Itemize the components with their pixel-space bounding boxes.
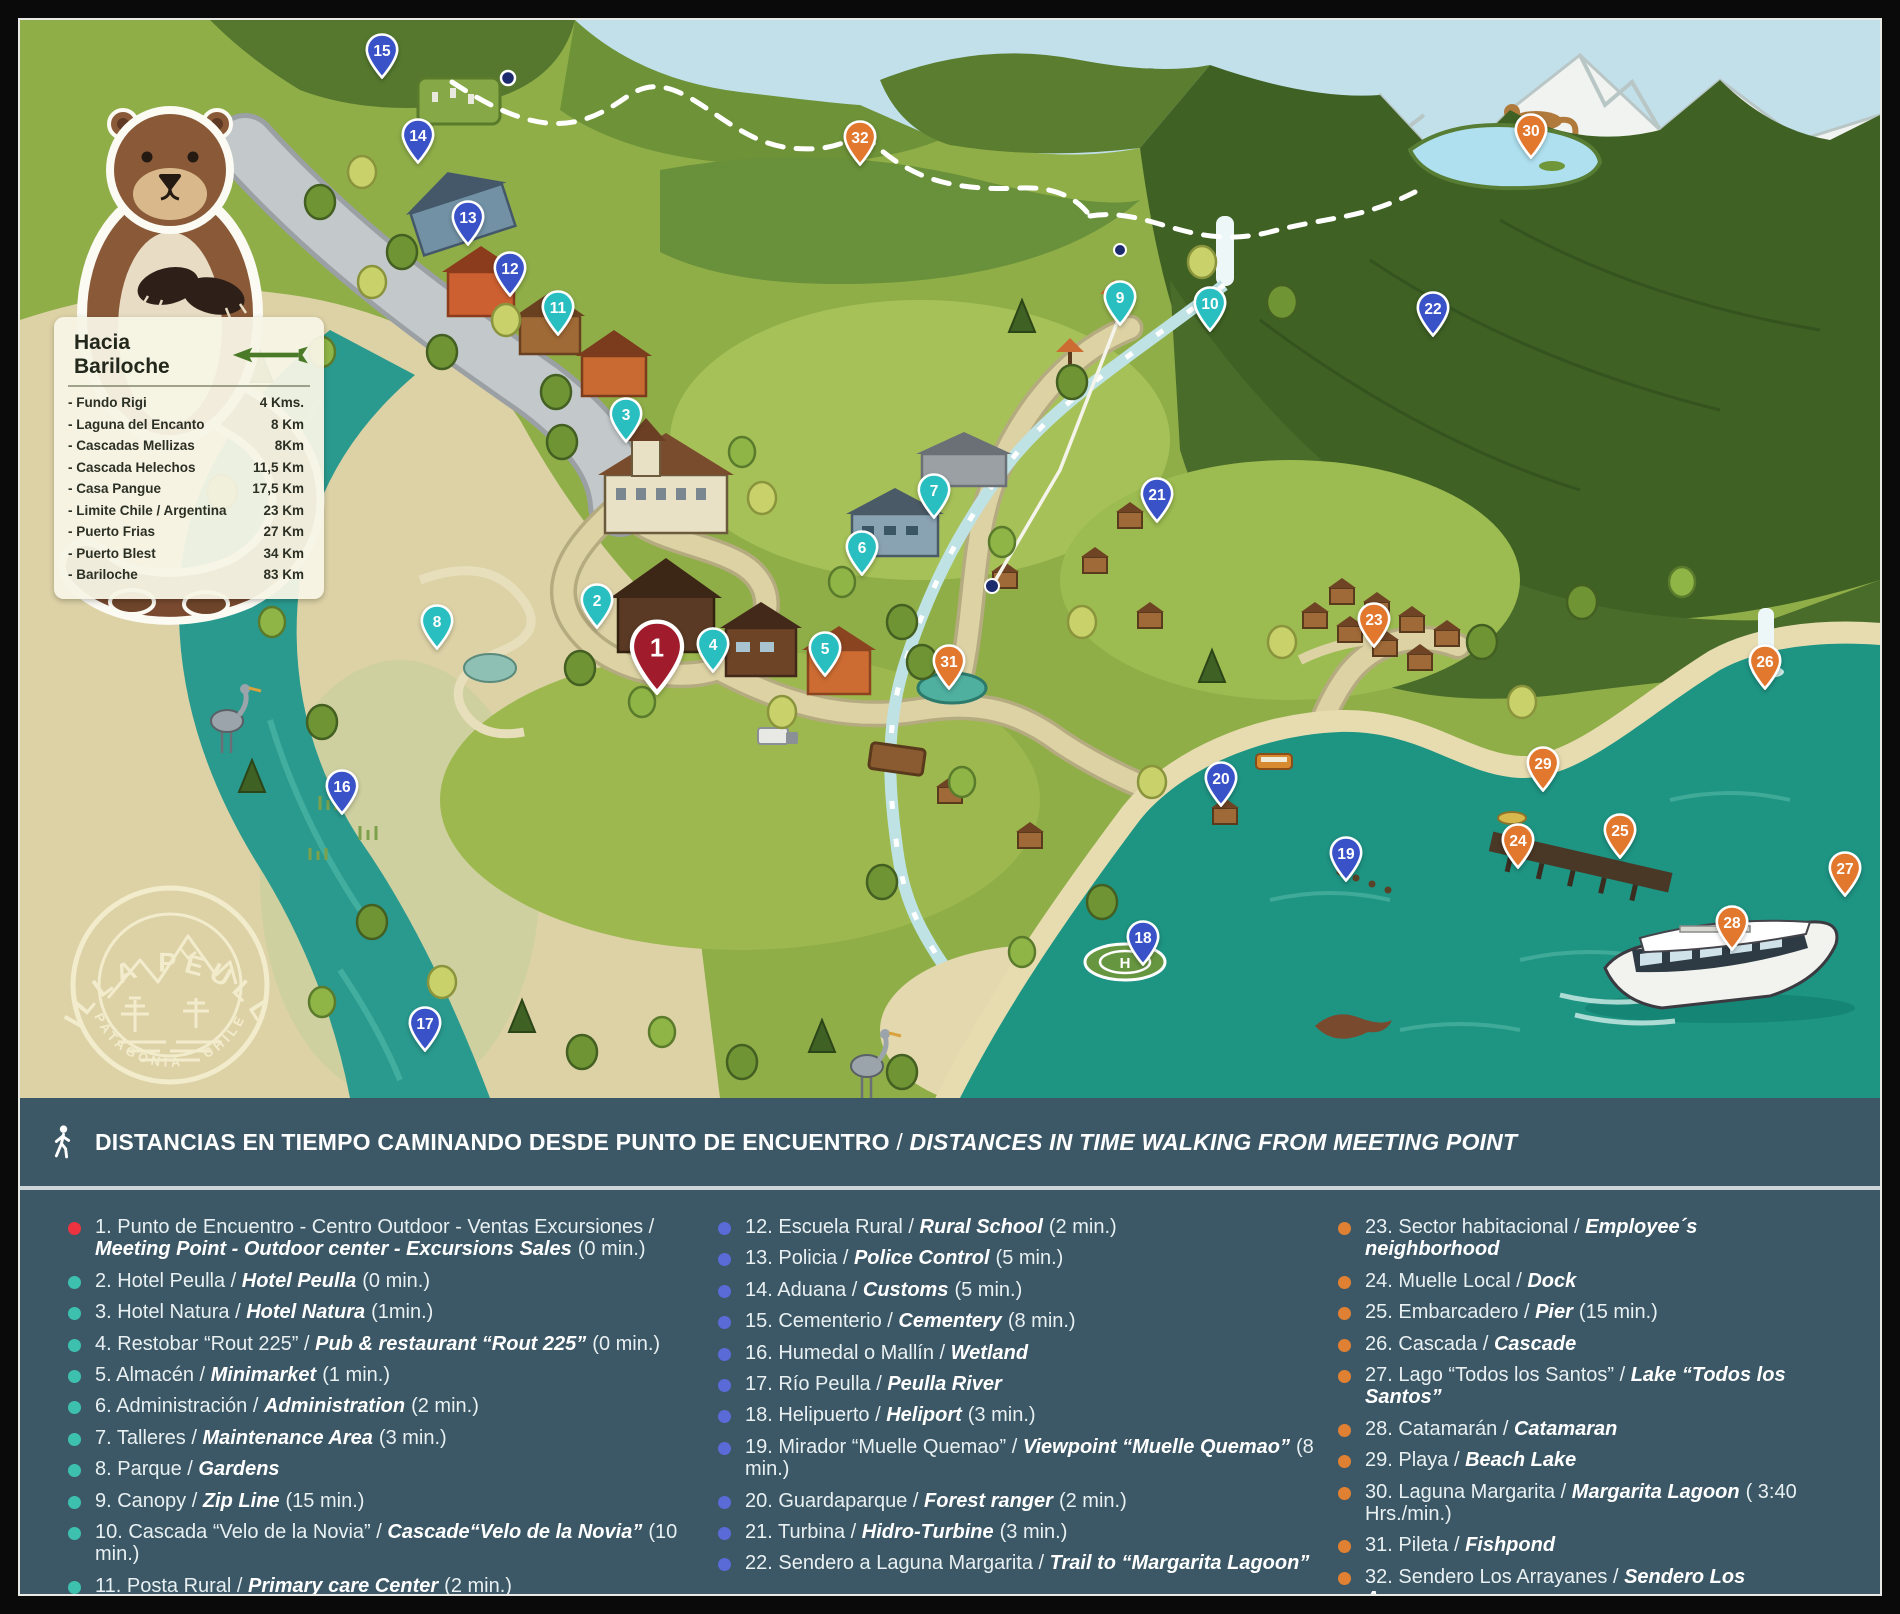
legend-column-3: 23. Sector habitacional / Employee´s nei…: [1338, 1216, 1850, 1594]
legend-item-6: 6. Administración / Administration(2 min…: [68, 1395, 718, 1417]
legend-bullet-orange: [1338, 1276, 1351, 1289]
map-marker-12[interactable]: 12: [493, 251, 527, 302]
legend-item-16: 16. Humedal o Mallín / Wetland: [718, 1342, 1338, 1364]
legend-item-text: 18. Helipuerto / Heliport(3 min.): [745, 1404, 1036, 1426]
legend-item-19: 19. Mirador “Muelle Quemao” / Viewpoint …: [718, 1436, 1338, 1481]
legend-item-text: 1. Punto de Encuentro - Centro Outdoor -…: [95, 1216, 700, 1261]
legend-item-24: 24. Muelle Local / Dock: [1338, 1270, 1850, 1292]
map-marker-23[interactable]: 23: [1357, 602, 1391, 653]
map-marker-7[interactable]: 7: [917, 473, 951, 524]
footer-text-es: DISTANCIAS EN TIEMPO CAMINANDO DESDE PUN…: [95, 1129, 890, 1155]
legend-item-7: 7. Talleres / Maintenance Area(3 min.): [68, 1427, 718, 1449]
marker-layer: 1234567891011121314151617181920212223242…: [20, 20, 1880, 1098]
legend-item-text: 32. Sendero Los Arrayanes / Sendero Los …: [1365, 1566, 1832, 1594]
legend-bullet-teal: [68, 1401, 81, 1414]
legend-bullet-blue: [718, 1379, 731, 1392]
legend-item-text: 26. Cascada / Cascade: [1365, 1333, 1582, 1355]
pin-number: 13: [459, 210, 477, 227]
map-marker-6[interactable]: 6: [845, 530, 879, 581]
pin-number: 10: [1201, 296, 1218, 313]
map-marker-20[interactable]: 20: [1204, 761, 1238, 812]
legend-item-text: 23. Sector habitacional / Employee´s nei…: [1365, 1216, 1832, 1261]
legend-item-11: 11. Posta Rural / Primary care Center(2 …: [68, 1575, 718, 1594]
map-marker-32[interactable]: 32: [843, 120, 877, 171]
legend-item-text: 31. Pileta / Fishpond: [1365, 1534, 1561, 1556]
pin-number: 30: [1522, 123, 1539, 140]
legend-column-1: 1. Punto de Encuentro - Centro Outdoor -…: [68, 1216, 718, 1594]
legend-item-text: 3. Hotel Natura / Hotel Natura(1min.): [95, 1301, 433, 1323]
legend-item-text: 24. Muelle Local / Dock: [1365, 1270, 1582, 1292]
pin-number: 29: [1534, 756, 1552, 773]
legend-item-text: 29. Playa / Beach Lake: [1365, 1449, 1582, 1471]
legend-item-8: 8. Parque / Gardens: [68, 1458, 718, 1480]
pin-number: 25: [1611, 823, 1629, 840]
legend-item-10: 10. Cascada “Velo de la Novia” / Cascade…: [68, 1521, 718, 1566]
legend-bullet-teal: [68, 1339, 81, 1352]
pin-number: 18: [1134, 930, 1152, 947]
legend-item-17: 17. Río Peulla / Peulla River: [718, 1373, 1338, 1395]
legend-bullet-orange: [1338, 1572, 1351, 1585]
pin-number: 17: [416, 1016, 433, 1033]
map-marker-28[interactable]: 28: [1715, 905, 1749, 956]
legend-item-21: 21. Turbina / Hidro-Turbine(3 min.): [718, 1521, 1338, 1543]
map-illustration: H: [20, 20, 1880, 1098]
legend-bullet-teal: [68, 1527, 81, 1540]
map-marker-25[interactable]: 25: [1603, 813, 1637, 864]
legend-item-text: 17. Río Peulla / Peulla River: [745, 1373, 1008, 1395]
pin-number: 20: [1212, 771, 1229, 788]
legend-bullet-orange: [1338, 1307, 1351, 1320]
legend-item-4: 4. Restobar “Rout 225” / Pub & restauran…: [68, 1333, 718, 1355]
legend-item-text: 4. Restobar “Rout 225” / Pub & restauran…: [95, 1333, 660, 1355]
pin-number: 27: [1836, 861, 1853, 878]
map-marker-15[interactable]: 15: [365, 33, 399, 84]
map-marker-31[interactable]: 31: [932, 644, 966, 695]
legend-bullet-blue: [718, 1410, 731, 1423]
legend-item-2: 2. Hotel Peulla / Hotel Peulla(0 min.): [68, 1270, 718, 1292]
pin-number: 16: [333, 779, 351, 796]
map-marker-24[interactable]: 24: [1501, 823, 1535, 874]
map-marker-2[interactable]: 2: [580, 583, 614, 634]
legend-bullet-orange: [1338, 1222, 1351, 1235]
map-marker-26[interactable]: 26: [1748, 644, 1782, 695]
legend-item-text: 9. Canopy / Zip Line(15 min.): [95, 1490, 364, 1512]
legend-bullet-orange: [1338, 1455, 1351, 1468]
legend-item-1: 1. Punto de Encuentro - Centro Outdoor -…: [68, 1216, 718, 1261]
pin-number: 3: [622, 407, 631, 424]
legend-item-text: 19. Mirador “Muelle Quemao” / Viewpoint …: [745, 1436, 1320, 1481]
legend-item-text: 28. Catamarán / Catamaran: [1365, 1418, 1623, 1440]
legend-bullet-teal: [68, 1496, 81, 1509]
legend-item-14: 14. Aduana / Customs(5 min.): [718, 1279, 1338, 1301]
legend-item-9: 9. Canopy / Zip Line(15 min.): [68, 1490, 718, 1512]
legend-bullet-teal: [68, 1464, 81, 1477]
legend-item-28: 28. Catamarán / Catamaran: [1338, 1418, 1850, 1440]
legend-item-text: 11. Posta Rural / Primary care Center(2 …: [95, 1575, 512, 1594]
footer-bar: DISTANCIAS EN TIEMPO CAMINANDO DESDE PUN…: [20, 1098, 1880, 1186]
map-marker-21[interactable]: 21: [1140, 477, 1174, 528]
legend-item-text: 21. Turbina / Hidro-Turbine(3 min.): [745, 1521, 1067, 1543]
legend-item-text: 5. Almacén / Minimarket(1 min.): [95, 1364, 390, 1386]
legend-bullet-red: [68, 1222, 81, 1235]
legend-item-15: 15. Cementerio / Cementery(8 min.): [718, 1310, 1338, 1332]
legend-bullet-blue: [718, 1285, 731, 1298]
legend-item-20: 20. Guardaparque / Forest ranger(2 min.): [718, 1490, 1338, 1512]
legend-item-text: 2. Hotel Peulla / Hotel Peulla(0 min.): [95, 1270, 430, 1292]
footer-text-en: DISTANCES IN TIME WALKING FROM MEETING P…: [910, 1129, 1518, 1155]
legend-bullet-blue: [718, 1442, 731, 1455]
legend-bullet-blue: [718, 1558, 731, 1571]
map-marker-16[interactable]: 16: [325, 769, 359, 820]
legend-item-18: 18. Helipuerto / Heliport(3 min.): [718, 1404, 1338, 1426]
map-marker-22[interactable]: 22: [1416, 291, 1450, 342]
legend-item-text: 20. Guardaparque / Forest ranger(2 min.): [745, 1490, 1127, 1512]
legend-item-text: 13. Policia / Police Control(5 min.): [745, 1247, 1063, 1269]
pin-number: 14: [409, 128, 427, 145]
legend-item-text: 12. Escuela Rural / Rural School(2 min.): [745, 1216, 1117, 1238]
pin-number: 7: [930, 483, 939, 500]
map-marker-27[interactable]: 27: [1828, 851, 1862, 902]
legend-panel: 1. Punto de Encuentro - Centro Outdoor -…: [20, 1190, 1880, 1594]
legend-bullet-orange: [1338, 1487, 1351, 1500]
pin-number: 26: [1756, 654, 1774, 671]
legend-bullet-teal: [68, 1370, 81, 1383]
map-marker-11[interactable]: 11: [541, 290, 575, 341]
pin-number: 21: [1148, 487, 1166, 504]
legend-item-text: 30. Laguna Margarita / Margarita Lagoon(…: [1365, 1481, 1832, 1526]
pin-number: 9: [1116, 290, 1125, 307]
map-marker-19[interactable]: 19: [1329, 836, 1363, 887]
legend-item-23: 23. Sector habitacional / Employee´s nei…: [1338, 1216, 1850, 1261]
pin-number: 6: [858, 540, 867, 557]
map-marker-18[interactable]: 18: [1126, 920, 1160, 971]
map-marker-9[interactable]: 9: [1103, 280, 1137, 331]
legend-bullet-orange: [1338, 1339, 1351, 1352]
map-marker-3[interactable]: 3: [609, 397, 643, 448]
legend-bullet-teal: [68, 1307, 81, 1320]
legend-item-text: 6. Administración / Administration(2 min…: [95, 1395, 479, 1417]
legend-bullet-blue: [718, 1253, 731, 1266]
map-marker-30[interactable]: 30: [1514, 113, 1548, 164]
legend-item-32: 32. Sendero Los Arrayanes / Sendero Los …: [1338, 1566, 1850, 1594]
map-poster: H: [20, 20, 1880, 1594]
legend-item-text: 22. Sendero a Laguna Margarita / Trail t…: [745, 1552, 1315, 1574]
pin-number: 2: [593, 593, 602, 610]
legend-item-text: 16. Humedal o Mallín / Wetland: [745, 1342, 1034, 1364]
pin-number: 24: [1509, 833, 1527, 850]
pin-number: 4: [709, 637, 718, 654]
pin-number: 1: [650, 635, 664, 663]
legend-item-text: 25. Embarcadero / Pier(15 min.): [1365, 1301, 1658, 1323]
pin-number: 15: [373, 43, 391, 60]
pin-number: 31: [940, 654, 958, 671]
map-marker-5[interactable]: 5: [808, 631, 842, 682]
legend-item-text: 10. Cascada “Velo de la Novia” / Cascade…: [95, 1521, 700, 1566]
pin-number: 22: [1424, 301, 1441, 318]
legend-bullet-teal: [68, 1433, 81, 1446]
legend-bullet-blue: [718, 1496, 731, 1509]
legend-item-25: 25. Embarcadero / Pier(15 min.): [1338, 1301, 1850, 1323]
legend-bullet-blue: [718, 1527, 731, 1540]
legend-item-12: 12. Escuela Rural / Rural School(2 min.): [718, 1216, 1338, 1238]
map-marker-8[interactable]: 8: [420, 604, 454, 655]
legend-column-2: 12. Escuela Rural / Rural School(2 min.)…: [718, 1216, 1338, 1594]
pin-number: 23: [1365, 612, 1383, 629]
pin-number: 28: [1723, 915, 1741, 932]
map-marker-13[interactable]: 13: [451, 200, 485, 251]
legend-item-text: 14. Aduana / Customs(5 min.): [745, 1279, 1022, 1301]
poster-frame: H: [0, 0, 1900, 1614]
pin-number: 12: [501, 261, 518, 278]
legend-item-text: 7. Talleres / Maintenance Area(3 min.): [95, 1427, 447, 1449]
legend-item-text: 27. Lago “Todos los Santos” / Lake “Todo…: [1365, 1364, 1832, 1409]
legend-item-26: 26. Cascada / Cascade: [1338, 1333, 1850, 1355]
footer-text: DISTANCIAS EN TIEMPO CAMINANDO DESDE PUN…: [95, 1129, 1517, 1156]
legend-item-29: 29. Playa / Beach Lake: [1338, 1449, 1850, 1471]
legend-bullet-orange: [1338, 1370, 1351, 1383]
legend-bullet-teal: [68, 1581, 81, 1594]
map-marker-29[interactable]: 29: [1526, 746, 1560, 797]
legend-item-text: 8. Parque / Gardens: [95, 1458, 286, 1480]
legend-bullet-orange: [1338, 1424, 1351, 1437]
map-marker-1[interactable]: 1: [629, 619, 685, 700]
legend-bullet-blue: [718, 1316, 731, 1329]
legend-bullet-orange: [1338, 1540, 1351, 1553]
legend-item-30: 30. Laguna Margarita / Margarita Lagoon(…: [1338, 1481, 1850, 1526]
legend-item-22: 22. Sendero a Laguna Margarita / Trail t…: [718, 1552, 1338, 1574]
footer-separator: /: [890, 1129, 910, 1155]
pin-number: 11: [550, 300, 567, 317]
legend-item-text: 15. Cementerio / Cementery(8 min.): [745, 1310, 1076, 1332]
pin-number: 5: [821, 641, 830, 658]
pin-number: 19: [1337, 846, 1355, 863]
map-marker-14[interactable]: 14: [401, 118, 435, 169]
legend-item-31: 31. Pileta / Fishpond: [1338, 1534, 1850, 1556]
map-marker-10[interactable]: 10: [1193, 286, 1227, 337]
legend-bullet-blue: [718, 1348, 731, 1361]
legend-item-13: 13. Policia / Police Control(5 min.): [718, 1247, 1338, 1269]
legend-bullet-teal: [68, 1276, 81, 1289]
legend-item-27: 27. Lago “Todos los Santos” / Lake “Todo…: [1338, 1364, 1850, 1409]
pin-number: 32: [851, 130, 868, 147]
legend-bullet-blue: [718, 1222, 731, 1235]
map-marker-17[interactable]: 17: [408, 1006, 442, 1057]
legend-item-5: 5. Almacén / Minimarket(1 min.): [68, 1364, 718, 1386]
walking-person-icon: [50, 1125, 75, 1160]
map-marker-4[interactable]: 4: [696, 627, 730, 678]
legend-item-3: 3. Hotel Natura / Hotel Natura(1min.): [68, 1301, 718, 1323]
pin-number: 8: [433, 614, 442, 631]
